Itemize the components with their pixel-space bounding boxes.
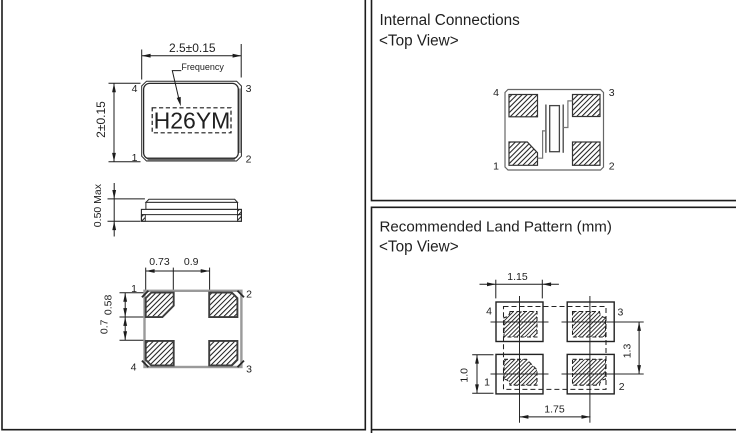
- svg-text:3: 3: [618, 307, 624, 319]
- svg-text:1: 1: [493, 161, 499, 173]
- svg-text:0.50 Max: 0.50 Max: [92, 183, 104, 227]
- svg-text:Frequency: Frequency: [181, 62, 224, 72]
- svg-text:2.5±0.15: 2.5±0.15: [169, 41, 216, 55]
- svg-text:<Top View>: <Top View>: [379, 32, 459, 49]
- svg-text:4: 4: [493, 87, 499, 99]
- svg-text:4: 4: [131, 362, 137, 374]
- svg-text:Recommended Land Pattern (mm): Recommended Land Pattern (mm): [380, 218, 612, 235]
- svg-text:H26YM: H26YM: [154, 107, 231, 133]
- svg-text:2: 2: [619, 381, 625, 393]
- svg-text:1.15: 1.15: [507, 271, 528, 283]
- svg-text:4: 4: [486, 306, 492, 318]
- svg-text:<Top View>: <Top View>: [379, 239, 459, 256]
- svg-text:0.7: 0.7: [98, 319, 110, 334]
- svg-text:4: 4: [132, 83, 138, 95]
- svg-text:1.3: 1.3: [622, 344, 634, 359]
- svg-text:0.9: 0.9: [184, 256, 199, 268]
- svg-text:2: 2: [246, 153, 252, 165]
- svg-text:3: 3: [609, 87, 615, 99]
- svg-text:1: 1: [132, 152, 138, 164]
- svg-text:1: 1: [484, 377, 490, 389]
- svg-text:2±0.15: 2±0.15: [94, 101, 108, 138]
- svg-text:2: 2: [246, 288, 252, 300]
- svg-text:1: 1: [131, 283, 137, 295]
- svg-text:3: 3: [246, 83, 252, 95]
- svg-text:1.0: 1.0: [459, 368, 471, 383]
- svg-text:2: 2: [609, 161, 615, 173]
- svg-text:Internal Connections: Internal Connections: [380, 12, 521, 29]
- svg-text:1.75: 1.75: [544, 403, 565, 415]
- svg-text:0.58: 0.58: [103, 295, 115, 316]
- svg-text:3: 3: [246, 363, 252, 375]
- svg-text:0.73: 0.73: [149, 256, 170, 268]
